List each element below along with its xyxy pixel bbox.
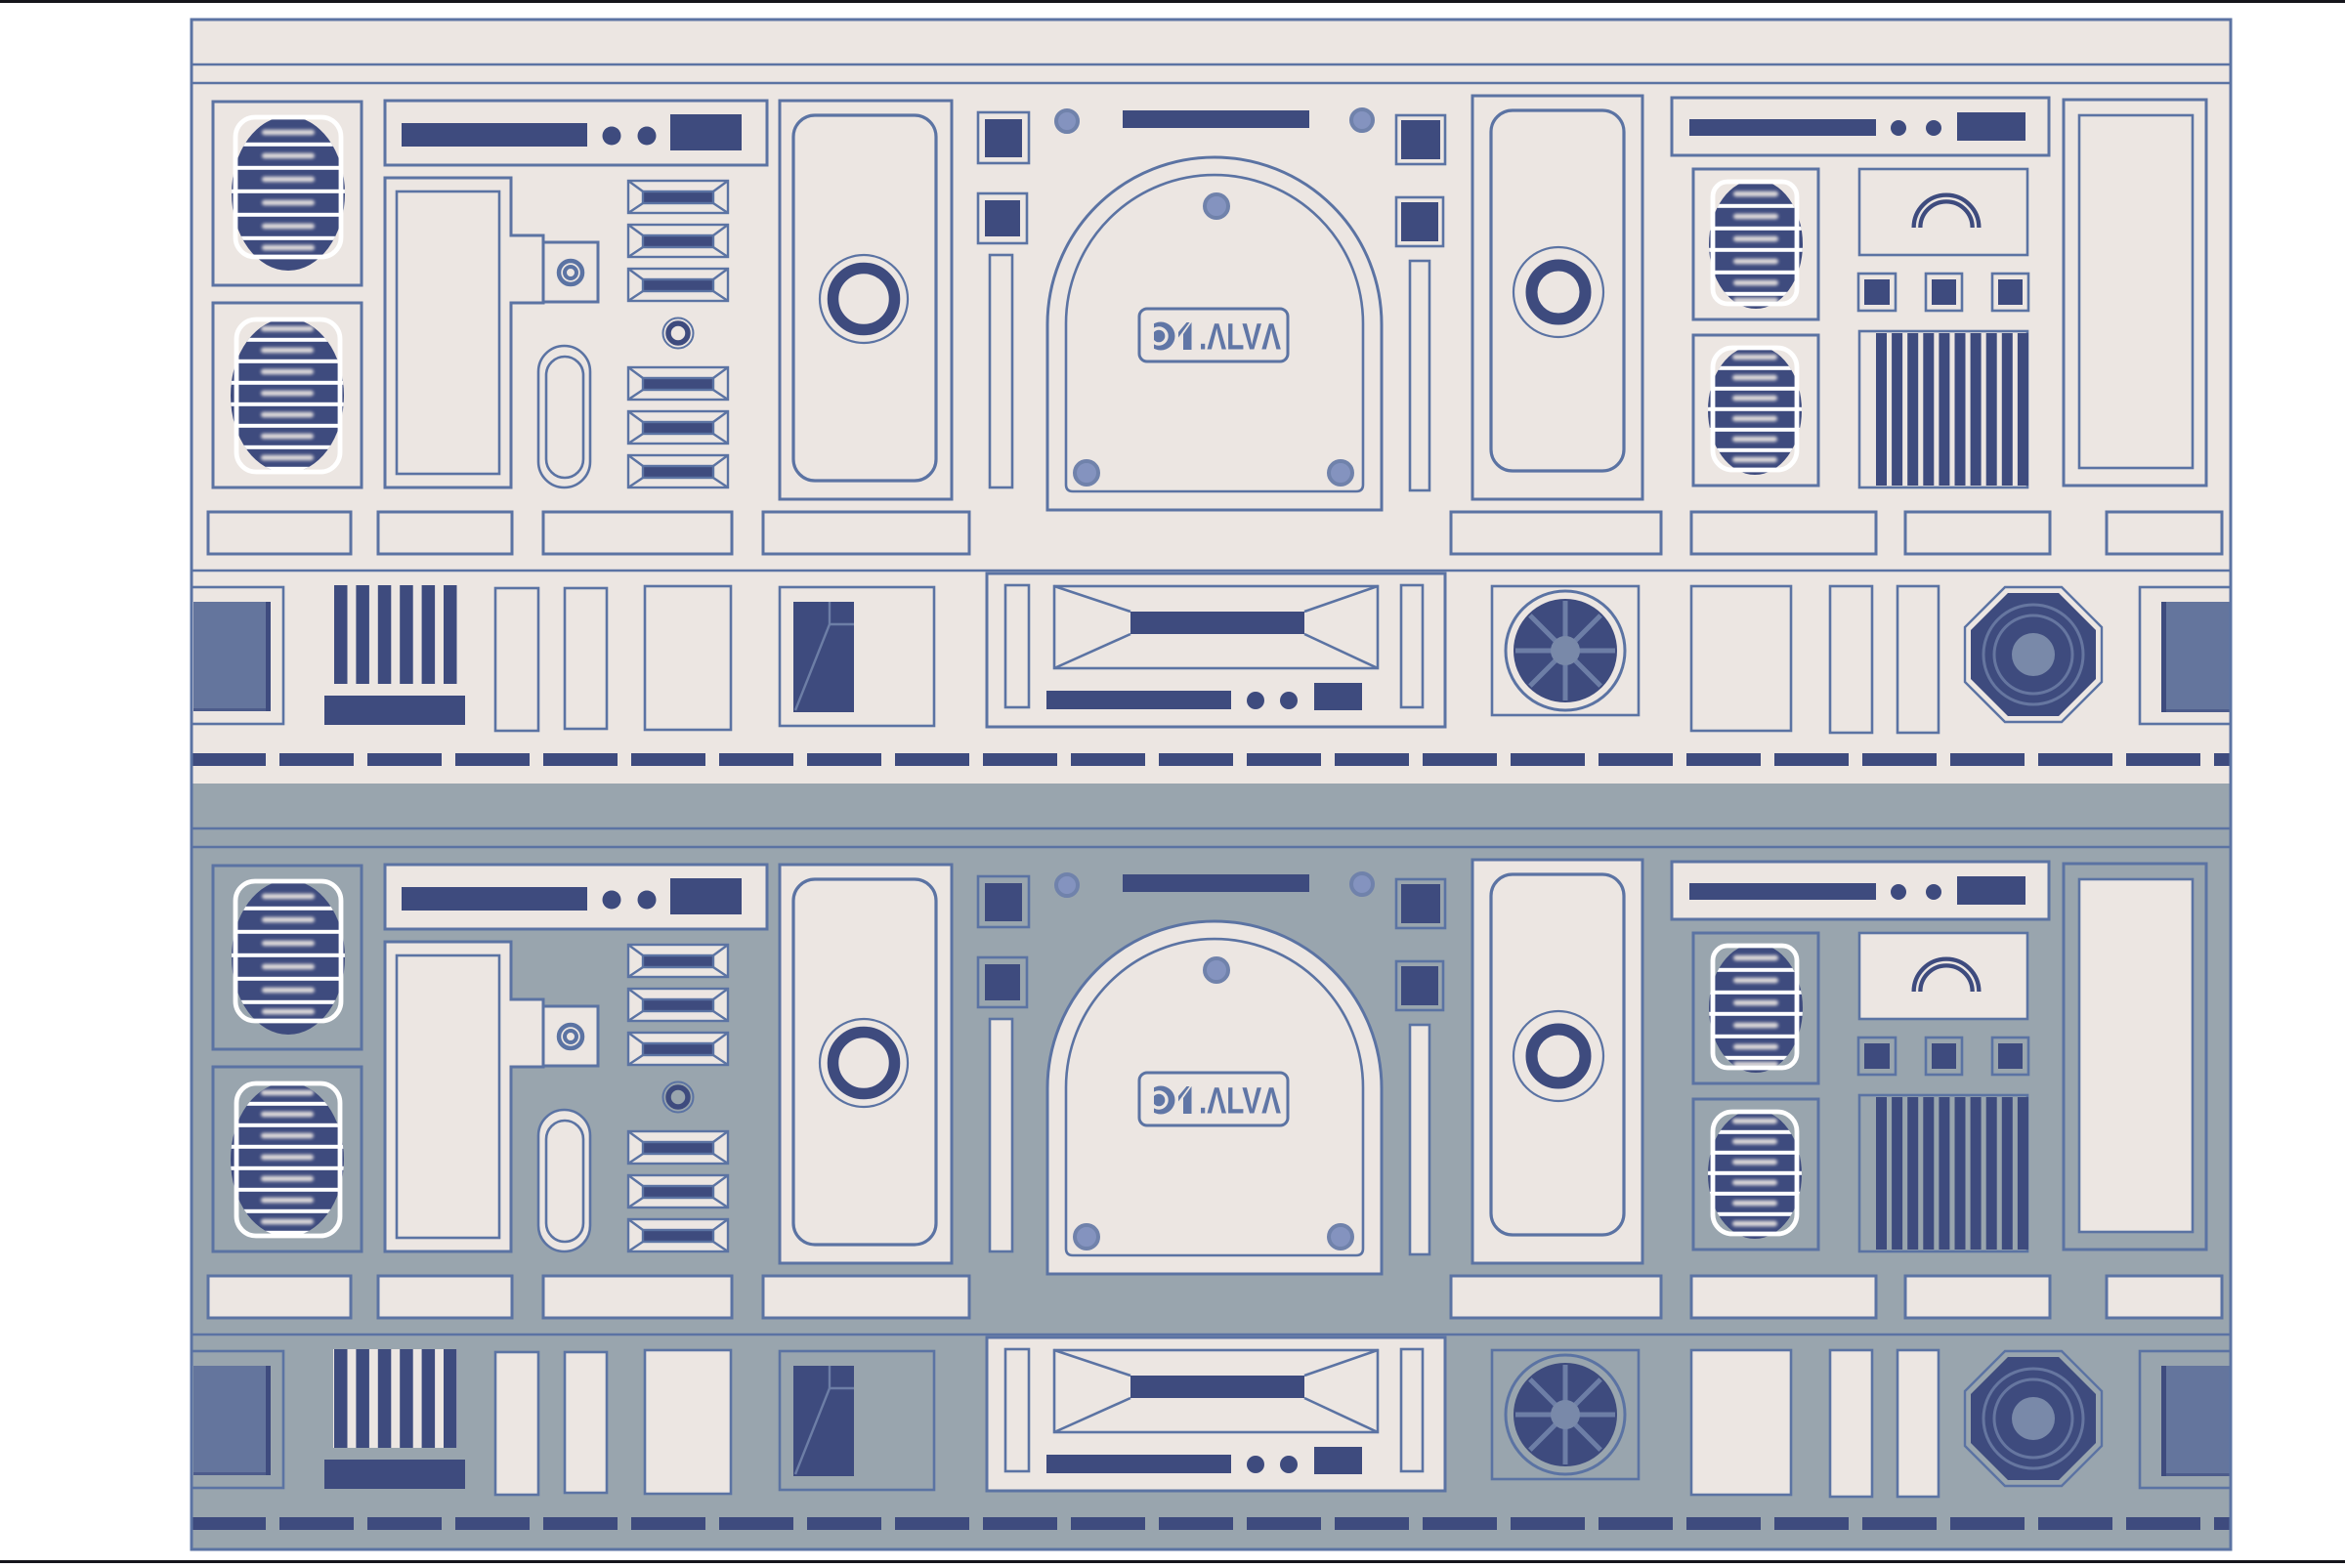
svg-text:.ΛLVΛ: .ΛLVΛ (1199, 1081, 1282, 1123)
svg-text:.ΛLVΛ: .ΛLVΛ (1199, 318, 1282, 359)
